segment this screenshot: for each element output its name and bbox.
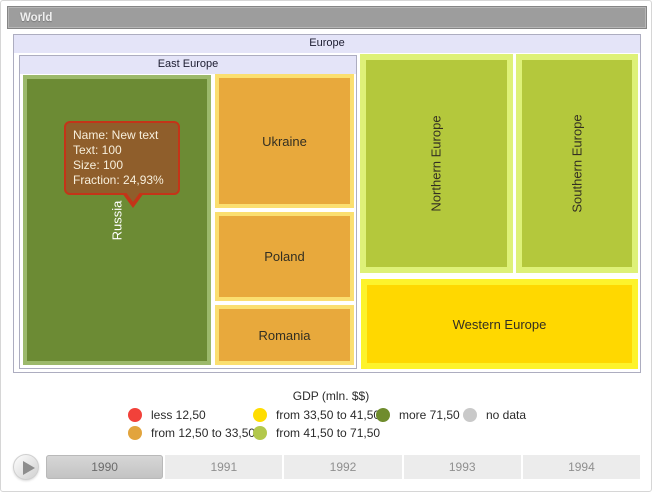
timeline-year-1990[interactable]: 1990	[46, 455, 163, 479]
legend-item-more[interactable]: more 71,50	[376, 407, 460, 422]
treemap-cell-southern-europe[interactable]: Southern Europe	[516, 54, 638, 273]
legend-item-label: from 12,50 to 33,50	[151, 426, 255, 440]
poland-label: Poland	[264, 249, 304, 264]
legend-item-12-33[interactable]: from 12,50 to 33,50	[128, 425, 255, 440]
region-east-europe-header[interactable]: East Europe	[20, 56, 356, 74]
play-button[interactable]	[13, 454, 39, 480]
tooltip-fraction-line: Fraction: 24,93%	[73, 173, 171, 188]
legend-item-label: less 12,50	[151, 408, 206, 422]
treemap-cell-ukraine[interactable]: Ukraine	[215, 74, 354, 208]
drillup-world-button[interactable]: World	[7, 6, 647, 29]
legend-item-label: no data	[486, 408, 526, 422]
southern-europe-label: Southern Europe	[569, 114, 584, 212]
timeline-year-1992[interactable]: 1992	[282, 455, 401, 479]
legend-title: GDP (mln. $$)	[231, 389, 431, 403]
legend-swatch-icon	[253, 408, 267, 422]
timeline-year-1993[interactable]: 1993	[402, 455, 521, 479]
tooltip-text-line: Text: 100	[73, 143, 171, 158]
legend-item-less[interactable]: less 12,50	[128, 407, 206, 422]
treemap-cell-russia[interactable]: Russia	[23, 75, 211, 365]
treemap-cell-poland[interactable]: Poland	[215, 212, 354, 301]
legend-swatch-icon	[128, 426, 142, 440]
legend-item-label: from 33,50 to 41,50	[276, 408, 380, 422]
ukraine-label: Ukraine	[262, 134, 307, 149]
legend-swatch-icon	[253, 426, 267, 440]
legend-swatch-icon	[463, 408, 477, 422]
treemap-cell-northern-europe[interactable]: Northern Europe	[360, 54, 513, 273]
legend-item-41-71[interactable]: from 41,50 to 71,50	[253, 425, 380, 440]
timeline: 1990 1991 1992 1993 1994	[46, 455, 640, 479]
northern-europe-label: Northern Europe	[429, 115, 444, 211]
play-icon	[23, 461, 35, 475]
treemap-cell-western-europe[interactable]: Western Europe	[361, 279, 638, 369]
tooltip-size-line: Size: 100	[73, 158, 171, 173]
timeline-year-1994[interactable]: 1994	[521, 455, 640, 479]
legend-item-33-41[interactable]: from 33,50 to 41,50	[253, 407, 380, 422]
treemap-chart-widget: World Europe East Europe Russia Ukraine …	[0, 0, 652, 492]
legend-item-label: from 41,50 to 71,50	[276, 426, 380, 440]
legend-item-no-data[interactable]: no data	[463, 407, 526, 422]
tooltip-name-line: Name: New text	[73, 128, 171, 143]
tooltip: Name: New text Text: 100 Size: 100 Fract…	[64, 121, 180, 195]
timeline-year-1991[interactable]: 1991	[163, 455, 282, 479]
legend-item-label: more 71,50	[399, 408, 460, 422]
romania-label: Romania	[258, 328, 310, 343]
region-europe-header[interactable]: Europe	[14, 35, 640, 53]
western-europe-label: Western Europe	[453, 317, 547, 332]
treemap-cell-romania[interactable]: Romania	[215, 305, 354, 365]
legend-swatch-icon	[128, 408, 142, 422]
legend-swatch-icon	[376, 408, 390, 422]
